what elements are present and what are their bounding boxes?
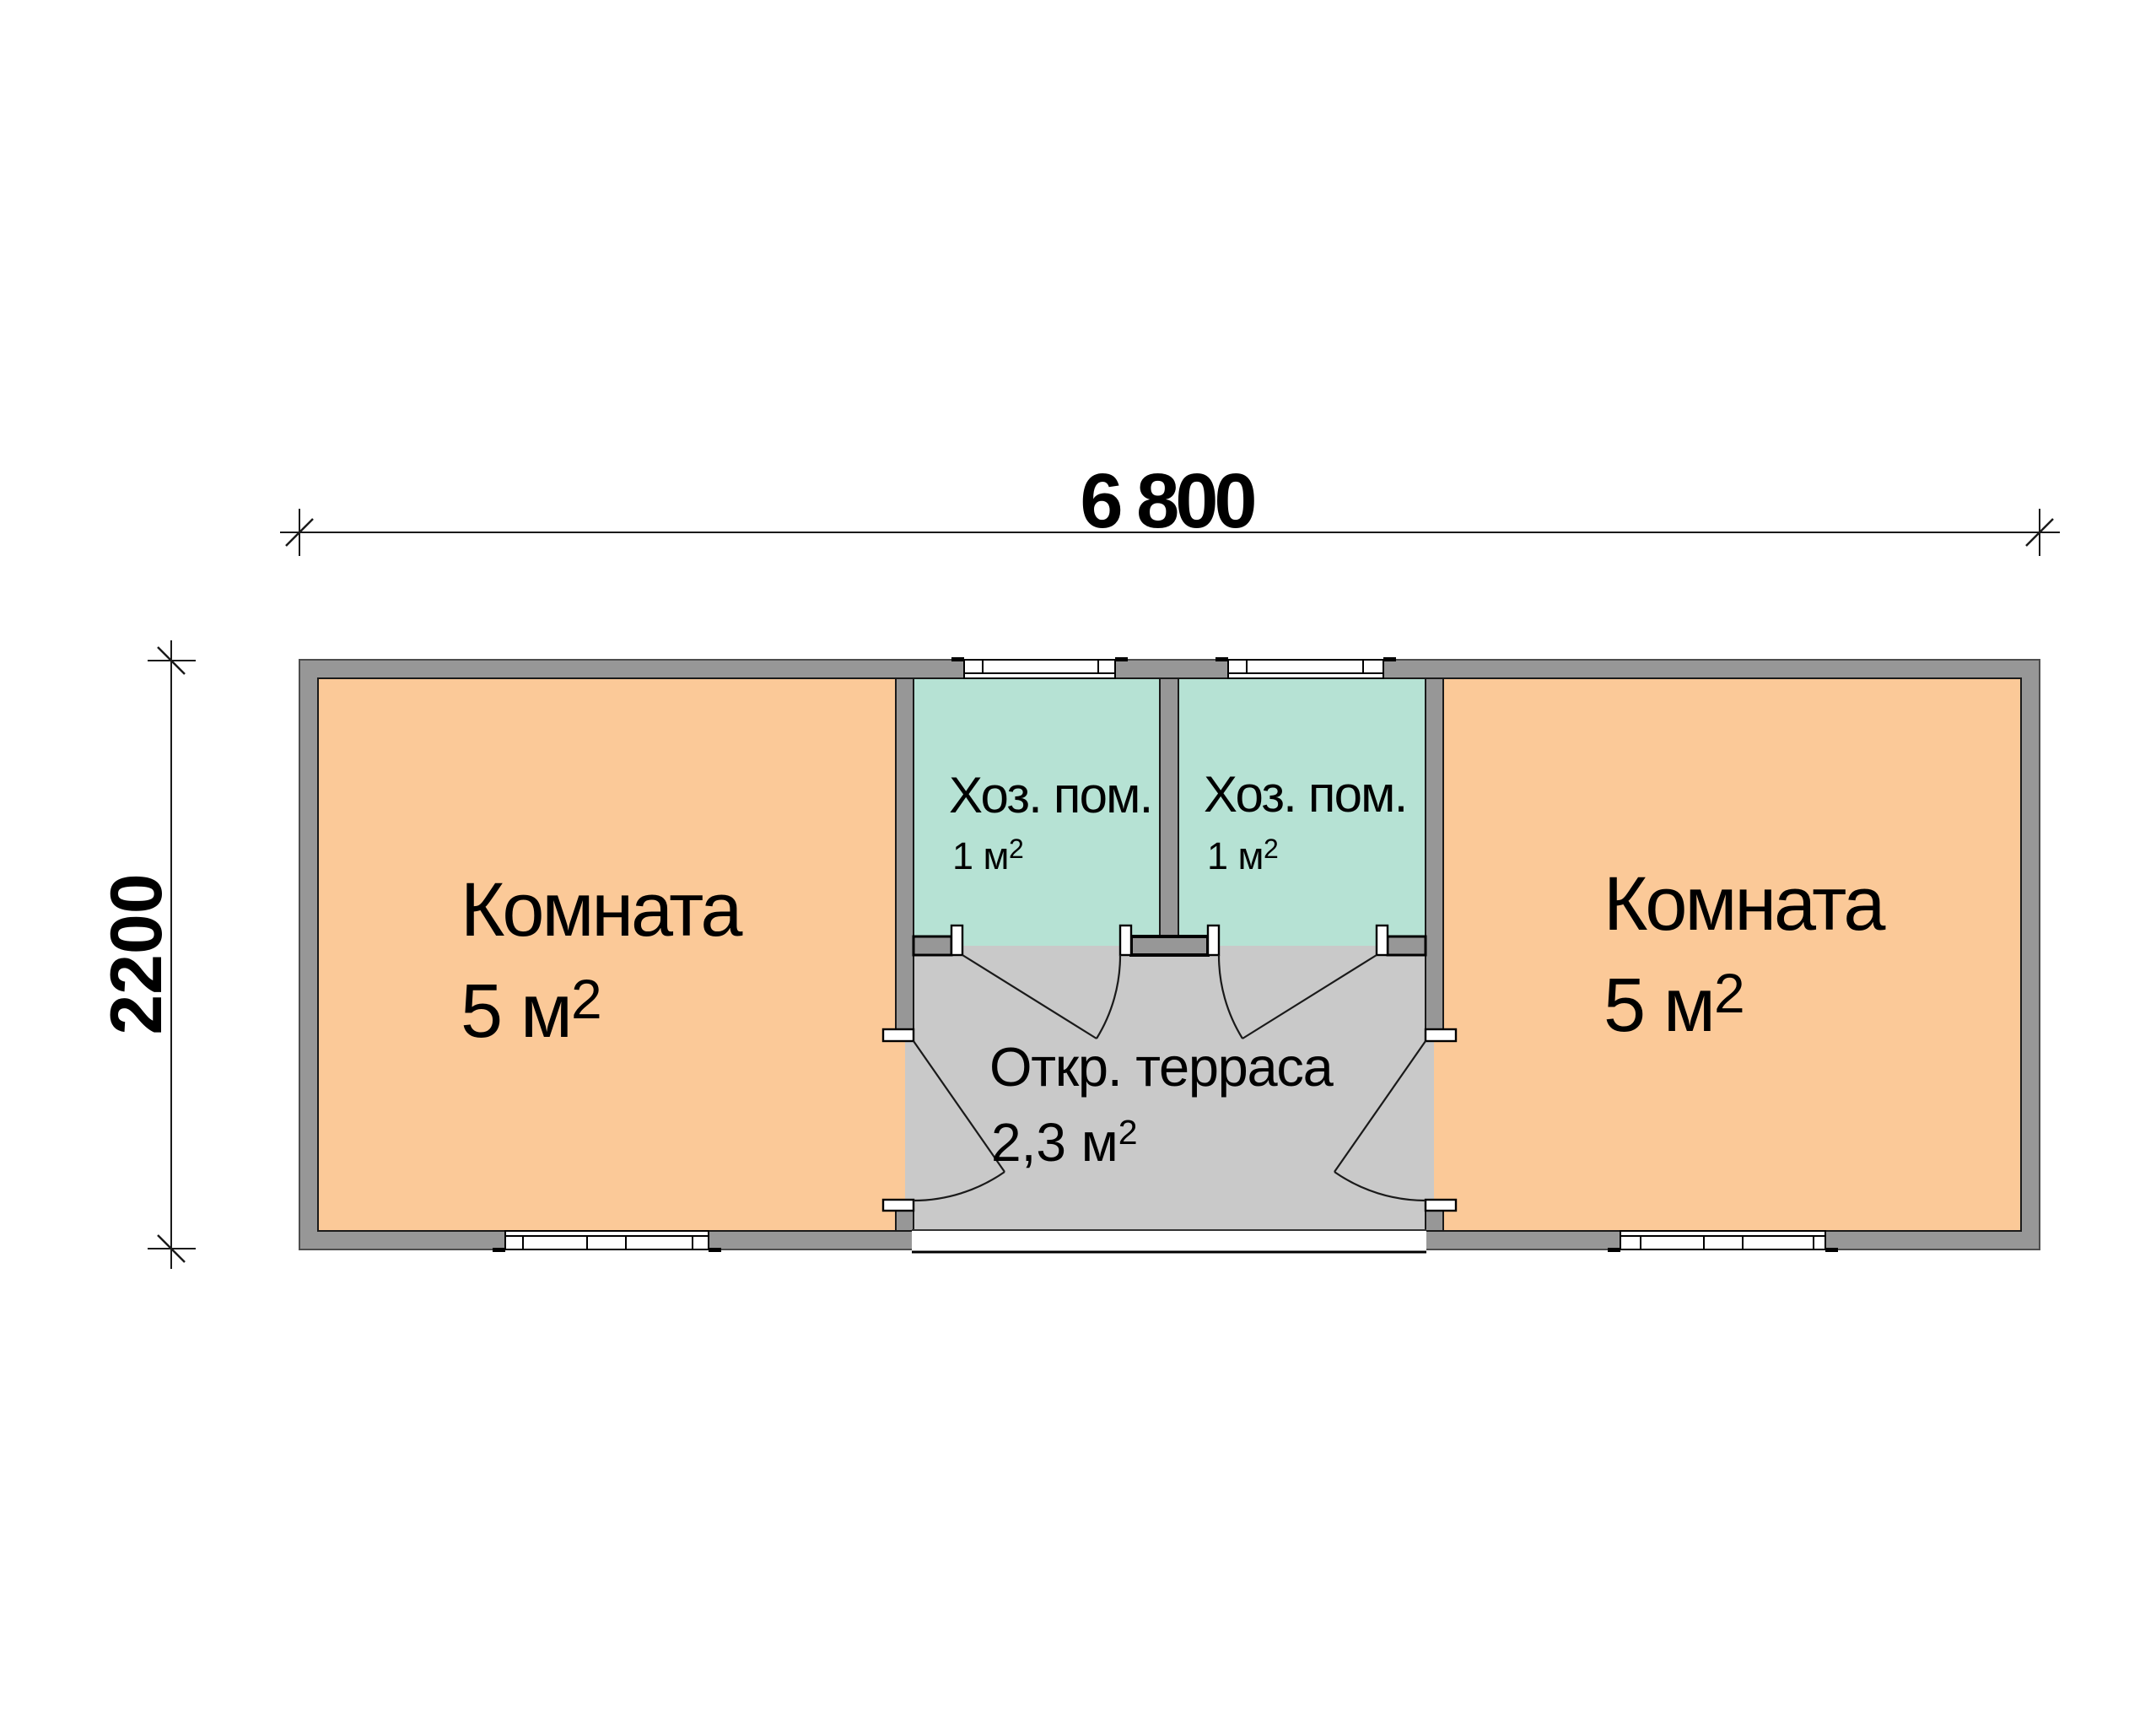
svg-text:Комната: Комната [461, 868, 743, 953]
svg-text:Хоз. пом.: Хоз. пом. [949, 767, 1151, 823]
svg-text:2200: 2200 [96, 873, 177, 1034]
svg-text:Откр. терраса: Откр. терраса [989, 1036, 1334, 1098]
svg-text:Хоз. пом.: Хоз. пом. [1204, 766, 1406, 823]
svg-text:6 800: 6 800 [1080, 458, 1254, 544]
svg-text:2,3 м2: 2,3 м2 [991, 1112, 1138, 1173]
svg-text:Комната: Комната [1604, 862, 1886, 947]
